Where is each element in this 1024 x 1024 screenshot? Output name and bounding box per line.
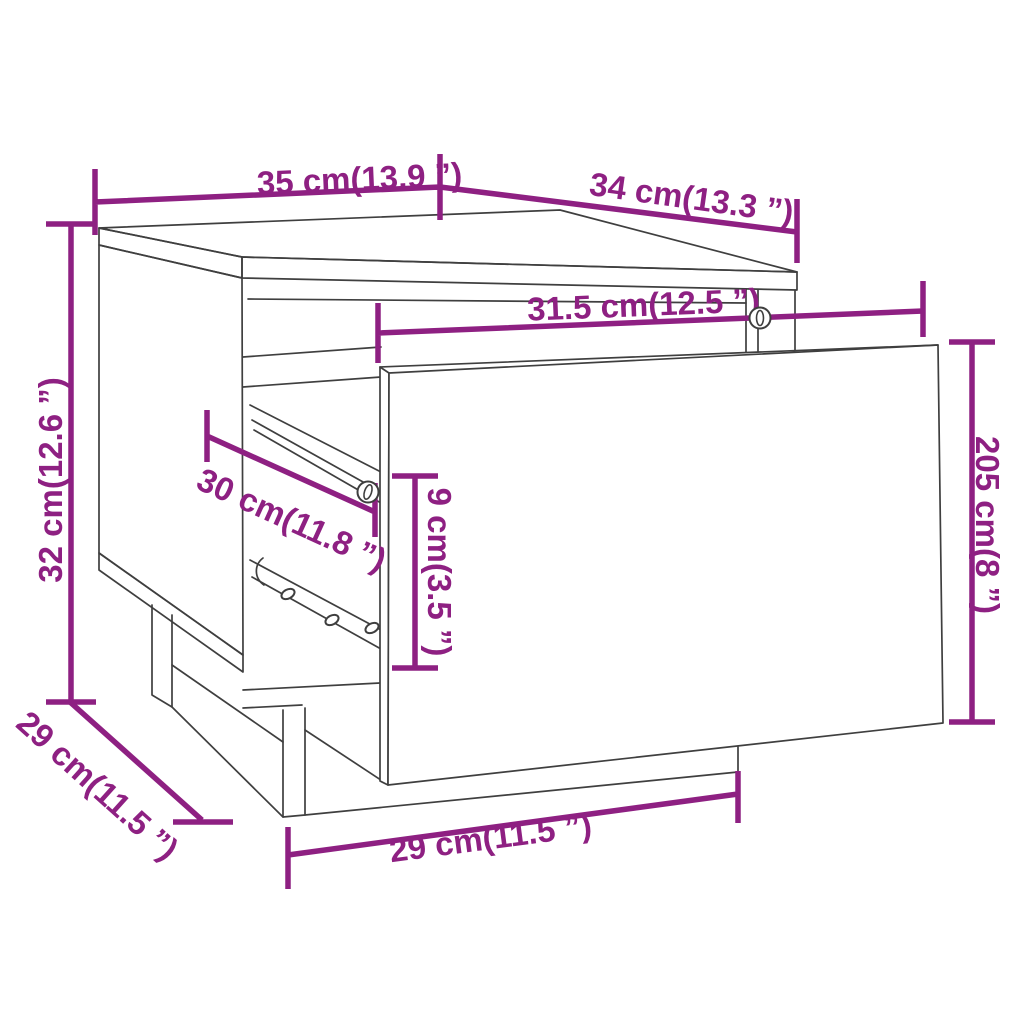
plinth-top-edge	[243, 705, 302, 708]
nightstand-drawing	[99, 210, 943, 817]
lower-slide-rail	[250, 560, 381, 649]
side-panel	[99, 245, 243, 655]
shelf-bottom-edge	[243, 377, 381, 387]
dim-top-width: 35 cm(13.9 ”)	[95, 154, 463, 235]
plinth-front-top-edge	[305, 730, 387, 784]
shelf-front-edge	[243, 347, 381, 357]
dim-drawer-front-height: 205 cm(8 ”)	[949, 342, 1006, 722]
dim-drawer-gap-height-label: 9 cm(3.5 ”)	[421, 488, 458, 657]
plinth-left-edge	[172, 665, 283, 817]
dim-drawer-front-height-label: 205 cm(8 ”)	[969, 436, 1006, 614]
dim-base-width: 29 cm(11.5 ”)	[288, 771, 738, 889]
slide-screw-1	[280, 587, 297, 602]
front-leg	[283, 708, 305, 817]
dim-side-height-label: 32 cm(12.6 ”)	[32, 377, 69, 582]
dimension-diagram: 35 cm(13.9 ”) 34 cm(13.3 ”) 32 cm(12.6 ”…	[0, 0, 1024, 1024]
dim-base-depth: 29 cm(11.5 ”)	[10, 702, 233, 867]
dim-base-width-label: 29 cm(11.5 ”)	[387, 806, 594, 869]
dim-top-depth: 34 cm(13.3 ”)	[440, 165, 797, 263]
dim-top-width-label: 35 cm(13.9 ”)	[256, 156, 463, 202]
dim-side-height: 32 cm(12.6 ”)	[32, 224, 96, 702]
dim-drawer-depth-label: 30 cm(11.8 ”)	[191, 460, 392, 578]
top-panel-edge-left	[99, 228, 242, 278]
drawer-front-panel	[388, 345, 943, 785]
side-panel-bottom-band	[99, 553, 243, 672]
bottom-board-front-edge	[243, 683, 380, 690]
nightstand-diagram-svg: 35 cm(13.9 ”) 34 cm(13.3 ”) 32 cm(12.6 ”…	[0, 0, 1024, 1024]
